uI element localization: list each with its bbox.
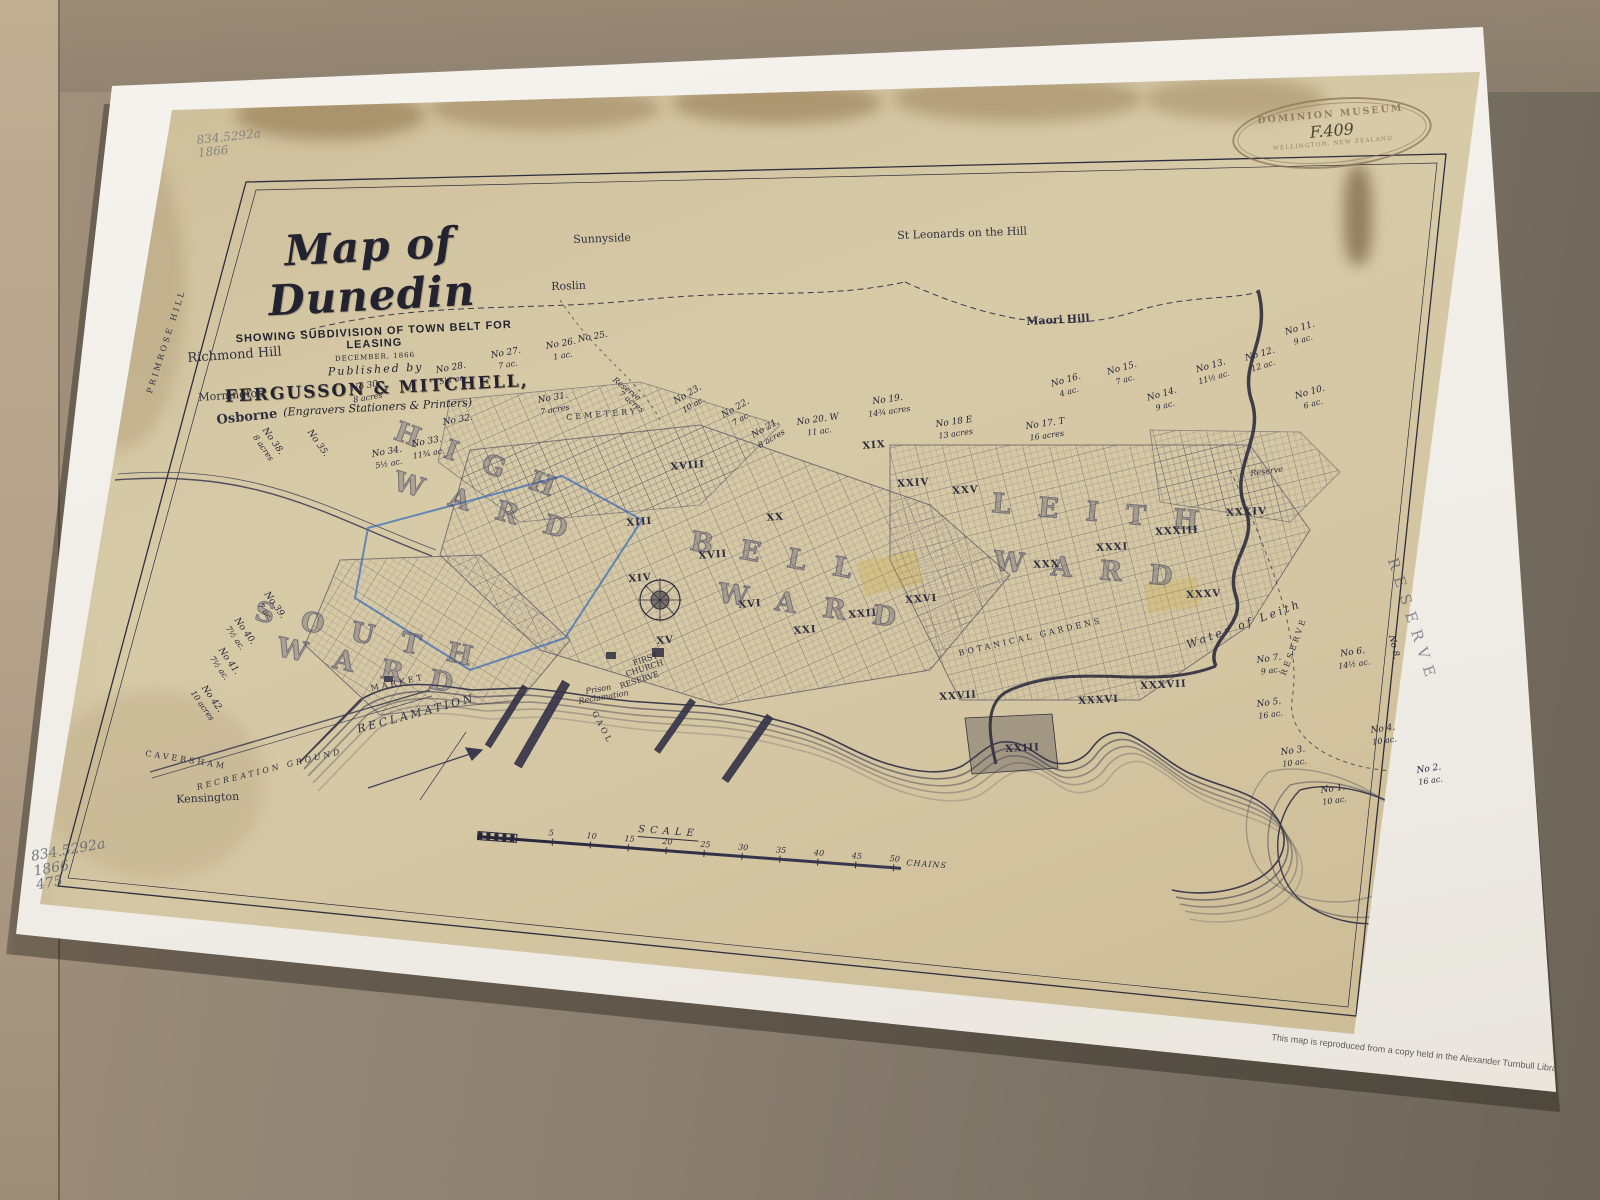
lot-label: No 28.5¼ ac.	[435, 361, 469, 388]
lot-label: No 21.8 acres	[750, 417, 787, 451]
lot-label: No 20. W11 ac.	[796, 412, 841, 440]
scale-tick: 25	[703, 850, 705, 857]
lot-label: No 11.9 ac.	[1284, 320, 1319, 350]
scale-tick: 5	[552, 839, 554, 846]
lot-label: No 10.6 ac.	[1294, 384, 1329, 414]
scale-tick: 50	[893, 864, 895, 871]
lot-label: No 42.10 acres	[188, 682, 226, 723]
lot-label: No 7.9 ac.	[1256, 653, 1284, 678]
lot-label: No 2.16 ac.	[1416, 763, 1444, 788]
lot-label: No 34.5½ ac.	[371, 445, 405, 472]
lot-label: No 12.12 ac.	[1244, 346, 1279, 376]
lot-label: No 33.11¾ ac.	[410, 434, 446, 461]
lot-label: No 19.14¾ acres	[866, 392, 911, 420]
lot-label: No 26.1 ac.	[545, 337, 579, 364]
lot-label: No 17. T16 acres	[1025, 417, 1067, 444]
lot-label: No 16.4 ac.	[1050, 372, 1085, 402]
lot-label: No 25.	[577, 330, 609, 347]
scale-tick: 35	[779, 856, 781, 863]
lot-label: No 40.7½ ac.	[222, 616, 258, 654]
lot-label: No 14.9 ac.	[1146, 386, 1181, 416]
lot-label: No 4.10 ac.	[1370, 723, 1398, 748]
scale-tick: 15	[628, 844, 630, 851]
lot-label: No 31.7 acres	[537, 391, 571, 418]
lot-label: No 6.14½ ac.	[1336, 646, 1371, 672]
scale-tick: 10	[590, 841, 592, 848]
scale-tick: 40	[817, 859, 819, 866]
lot-label: No 39.7 ac.	[252, 590, 288, 628]
lot-label: No 35.	[303, 428, 330, 460]
lot-label: No 30.8 acres	[350, 379, 384, 406]
scale-tick: 45	[855, 861, 857, 868]
lot-label: No 13.11½ ac.	[1194, 357, 1231, 387]
lot-label: No 15.7 ac.	[1106, 360, 1141, 390]
lot-label: No 1.10 ac.	[1320, 783, 1348, 808]
lot-label: No 38.8 acres	[250, 426, 286, 464]
scale-tick: 20	[665, 847, 667, 854]
lot-label: No 23.10 ac.	[672, 383, 709, 417]
lot-label: No 27.7 ac.	[490, 346, 524, 373]
scale-tick: 30	[741, 853, 743, 860]
lot-label: No 3.10 ac.	[1280, 745, 1308, 770]
lot-label: No 8.	[1385, 634, 1402, 661]
lot-label: No 18 E13 acres	[935, 415, 975, 442]
lot-label: No 22.7 ac.	[720, 397, 757, 431]
lot-label: No 41.7½ ac.	[206, 646, 242, 684]
lot-label: No 32.	[442, 413, 474, 430]
lot-label: No 5.16 ac.	[1256, 697, 1284, 722]
